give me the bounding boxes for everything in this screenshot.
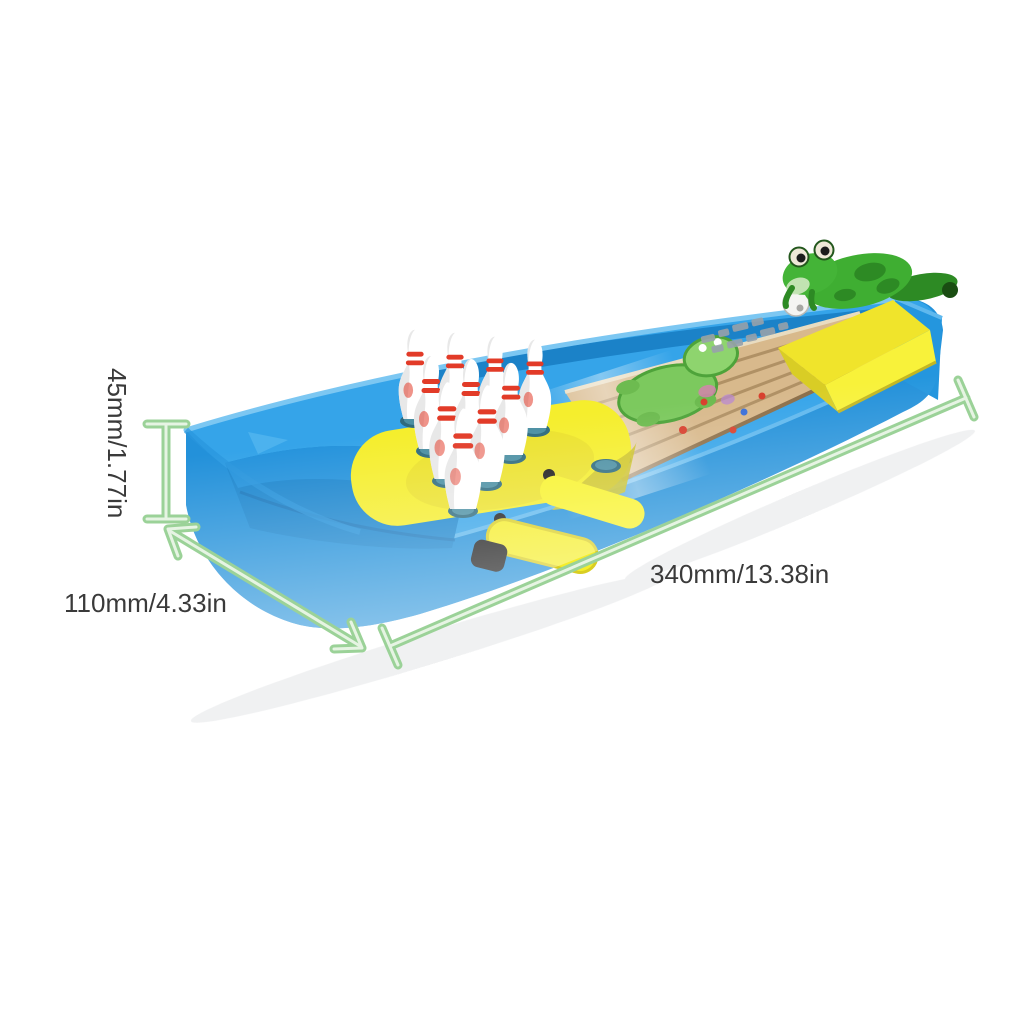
product-image: 45mm/1.77in 110mm/4.33in 340mm/13.38in [0,0,1010,1010]
toy-illustration [0,0,1010,1010]
height-dimension-line [147,424,186,519]
length-dimension-label: 340mm/13.38in [650,560,860,589]
height-dimension-label: 45mm/1.77in [102,368,131,538]
depth-dimension-label: 110mm/4.33in [64,589,254,618]
